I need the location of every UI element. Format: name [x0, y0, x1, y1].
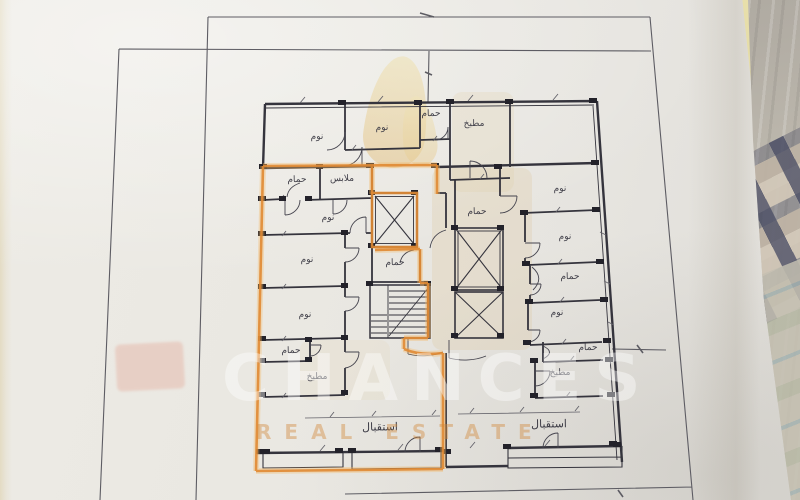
room-label-bathroom: حمام: [560, 272, 579, 282]
room-label-bedroom: نوم: [299, 310, 312, 320]
room-label-bedroom: نوم: [376, 123, 389, 133]
room-label-kitchen: مطبخ: [464, 119, 485, 129]
room-label-bathroom: حمام: [467, 207, 486, 217]
room-label-bathroom: حمام: [385, 258, 404, 268]
room-label-bathroom: حمام: [421, 109, 440, 119]
watermark-brand: CHANCES: [222, 342, 722, 416]
floor-plan-photo: نومنومحماممطبخنومحمامنومحمامنومحمامملابس…: [0, 0, 800, 500]
room-label-bedroom: نوم: [322, 213, 335, 223]
room-label-bedroom: نوم: [551, 308, 564, 318]
watermark-tagline: REAL ESTATE: [256, 420, 676, 444]
room-label-bathroom: حمام: [287, 175, 306, 185]
staircase: [370, 285, 430, 338]
room-label-bedroom: نوم: [554, 184, 567, 194]
room-label-bedroom: نوم: [559, 232, 572, 242]
room-label-dressing-room: ملابس: [330, 174, 354, 184]
room-label-bedroom: نوم: [301, 255, 314, 265]
room-label-bedroom: نوم: [311, 132, 324, 142]
